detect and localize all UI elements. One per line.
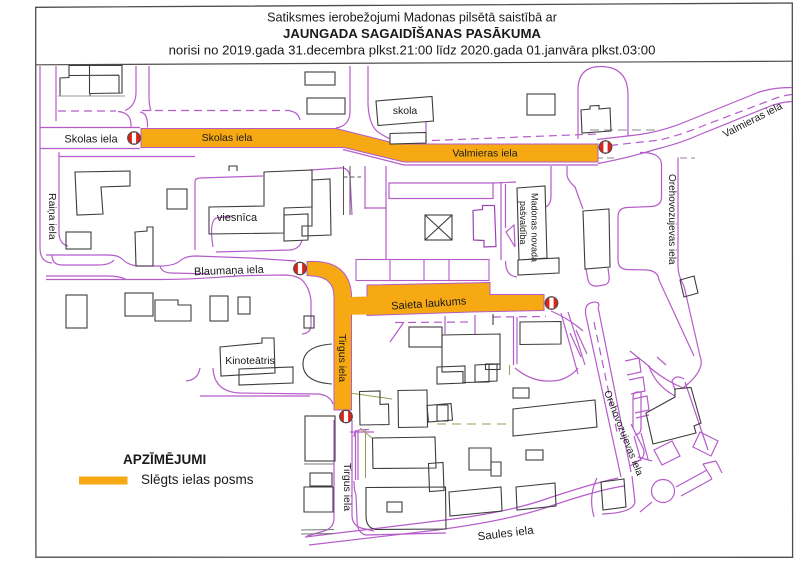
svg-text:norisi no 2019.gada 31.decembr: norisi no 2019.gada 31.decembra plkst.21… [169,43,656,58]
svg-text:viesnīca: viesnīca [217,212,258,224]
svg-text:Tirgus iela: Tirgus iela [336,334,348,382]
svg-text:Skolas iela: Skolas iela [202,132,253,144]
svg-text:Blaumaņa iela: Blaumaņa iela [194,264,265,278]
svg-text:JAUNGADA SAGAIDĪŠANAS PASĀKUMA: JAUNGADA SAGAIDĪŠANAS PASĀKUMA [283,26,541,41]
svg-text:Satiksmes ierobežojumi Madonas: Satiksmes ierobežojumi Madonas pilsētā s… [267,11,557,25]
svg-text:Raiņa iela: Raiņa iela [46,193,58,240]
svg-text:skola: skola [393,105,418,117]
svg-text:Orehovozujevas iela: Orehovozujevas iela [666,174,677,265]
svg-text:Valmieras iela: Valmieras iela [452,148,517,160]
svg-text:pašvaldība: pašvaldība [518,201,528,245]
svg-text:Kinoteātris: Kinoteātris [225,355,275,367]
svg-text:Skolas iela: Skolas iela [64,134,118,146]
svg-text:Slēgts ielas posms: Slēgts ielas posms [141,472,254,487]
svg-text:Madonas novada: Madonas novada [530,193,540,262]
svg-text:APZĪMĒJUMI: APZĪMĒJUMI [123,452,206,467]
svg-text:Tirgus iela: Tirgus iela [341,463,353,511]
